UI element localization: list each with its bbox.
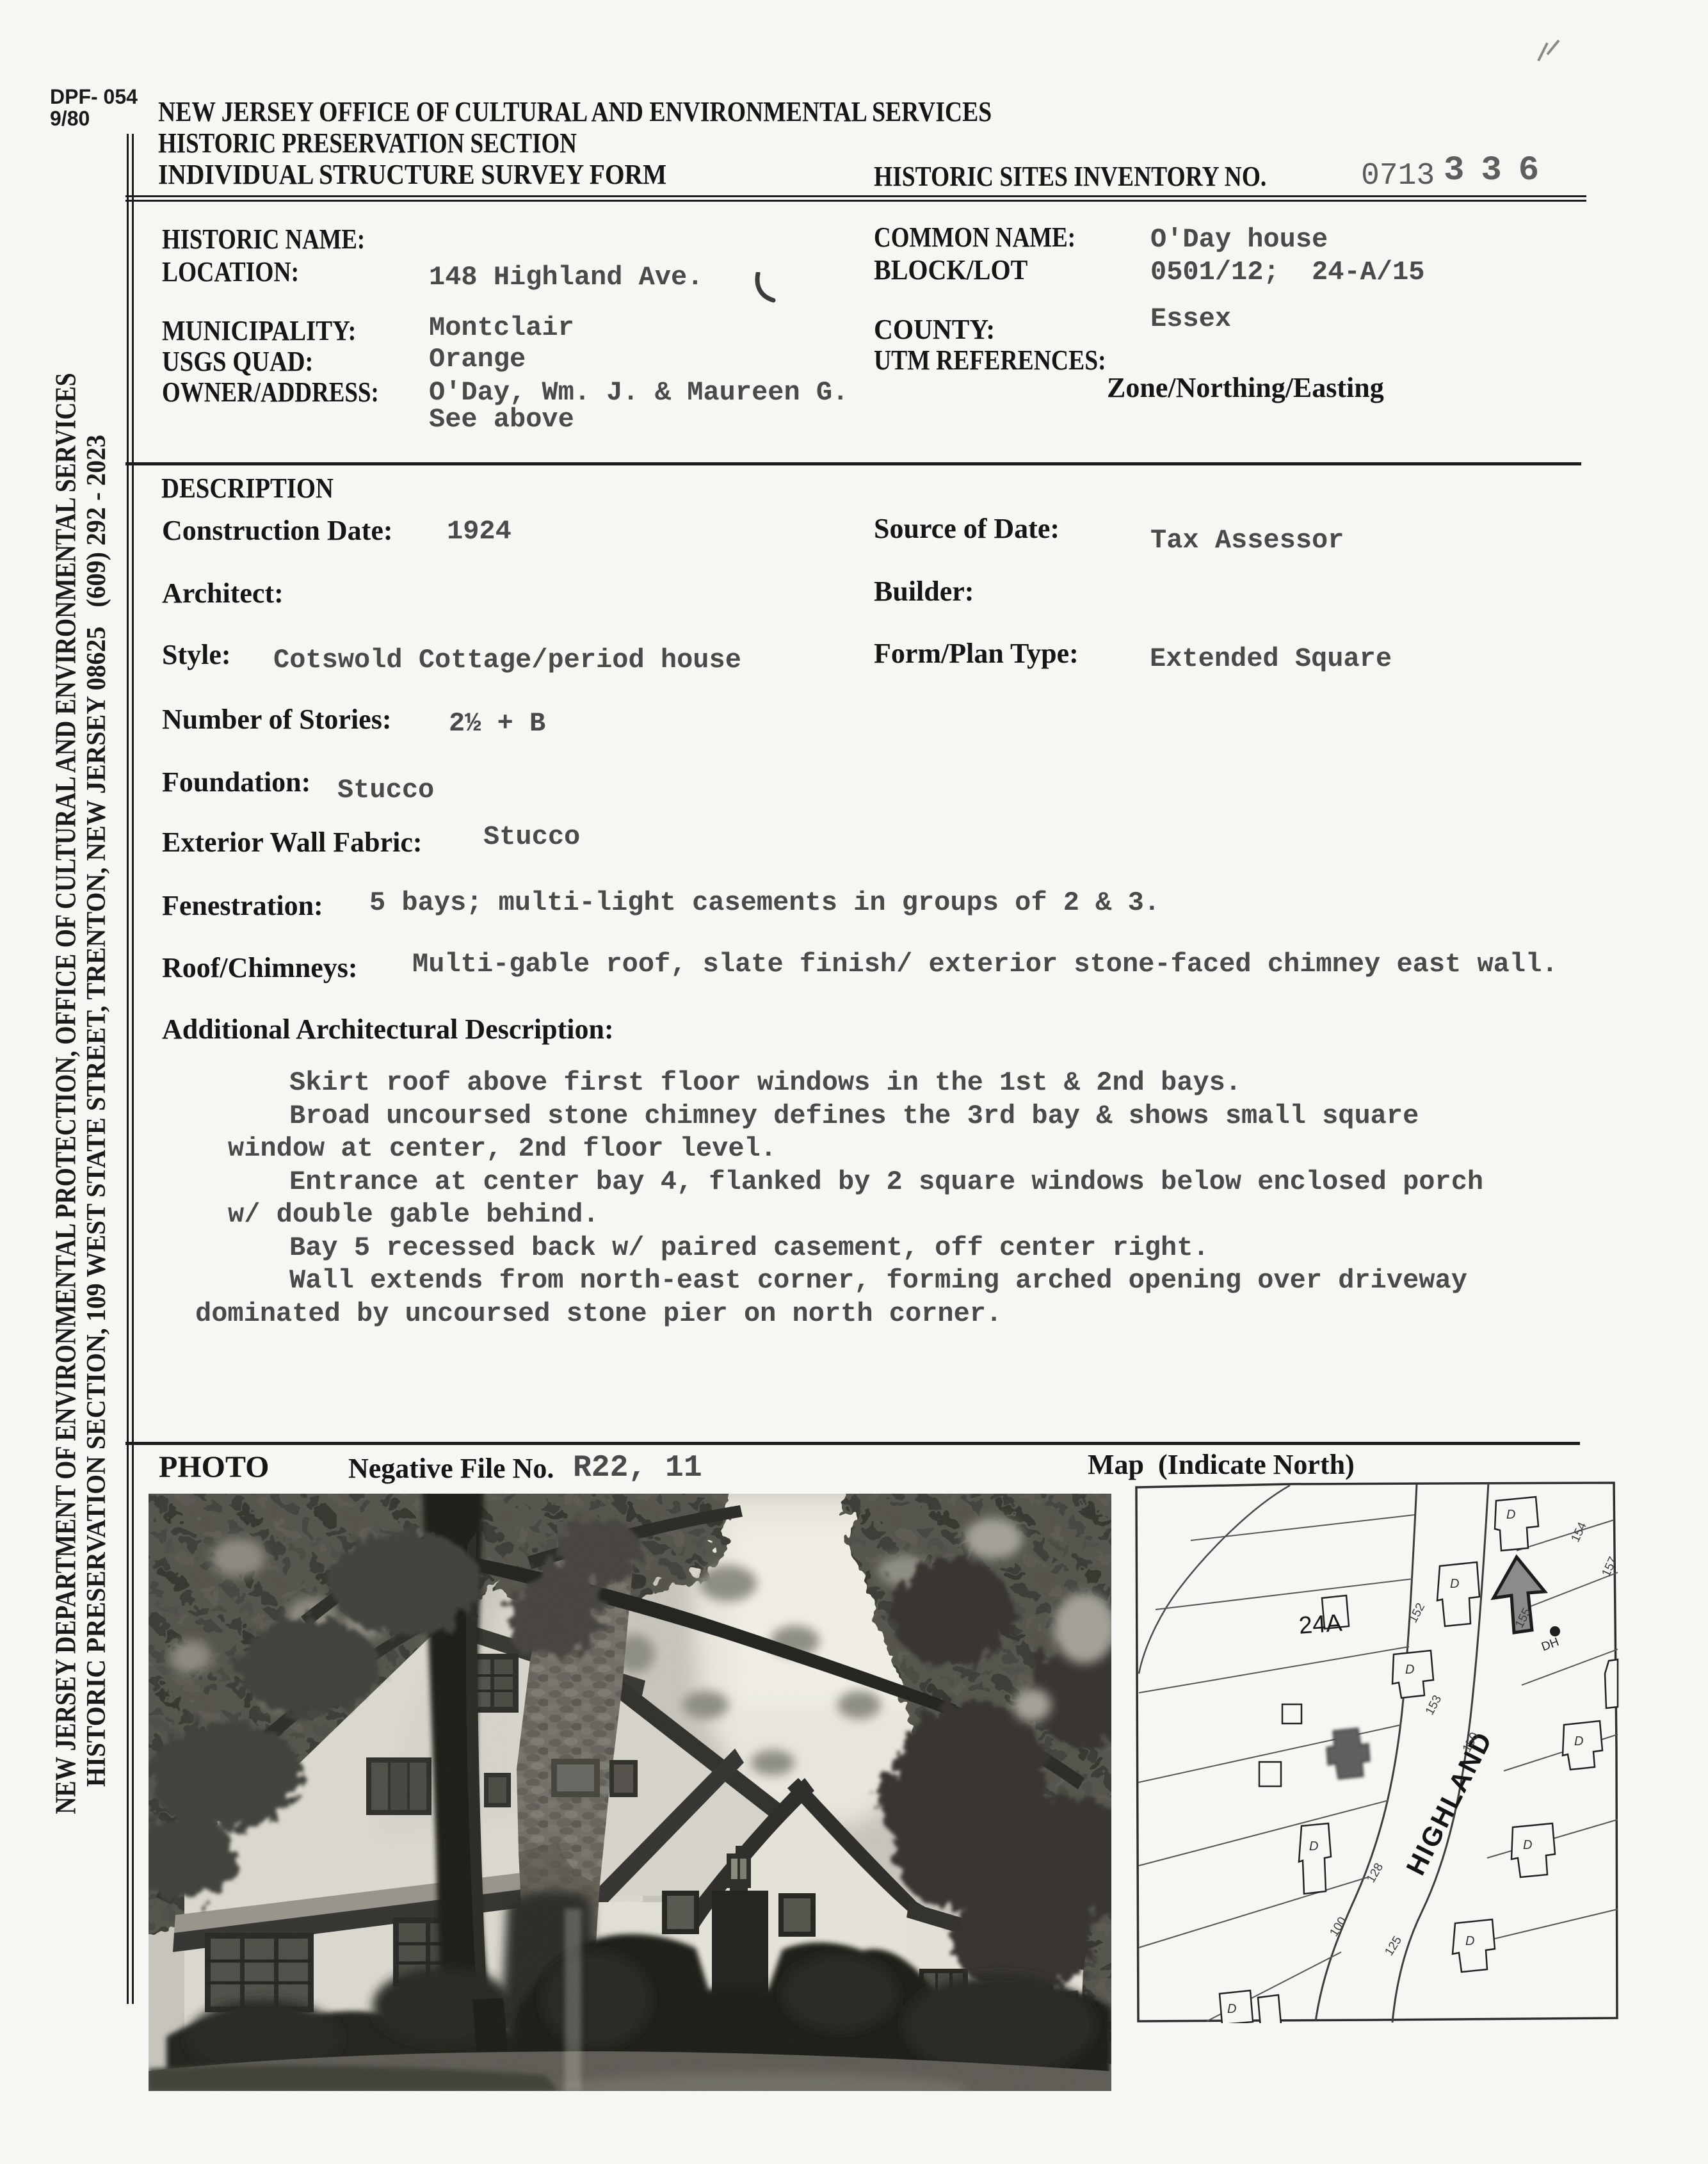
svg-text:D: D <box>1450 1577 1459 1591</box>
svg-text:D: D <box>1405 1663 1414 1677</box>
svg-text:D: D <box>1506 1508 1515 1522</box>
svg-text:D: D <box>1523 1838 1532 1852</box>
svg-text:D: D <box>1574 1734 1583 1748</box>
svg-text:24A: 24A <box>1298 1610 1343 1640</box>
svg-text:D: D <box>1465 1934 1474 1948</box>
svg-text:D: D <box>1309 1839 1318 1853</box>
svg-text:D: D <box>1227 2002 1236 2016</box>
